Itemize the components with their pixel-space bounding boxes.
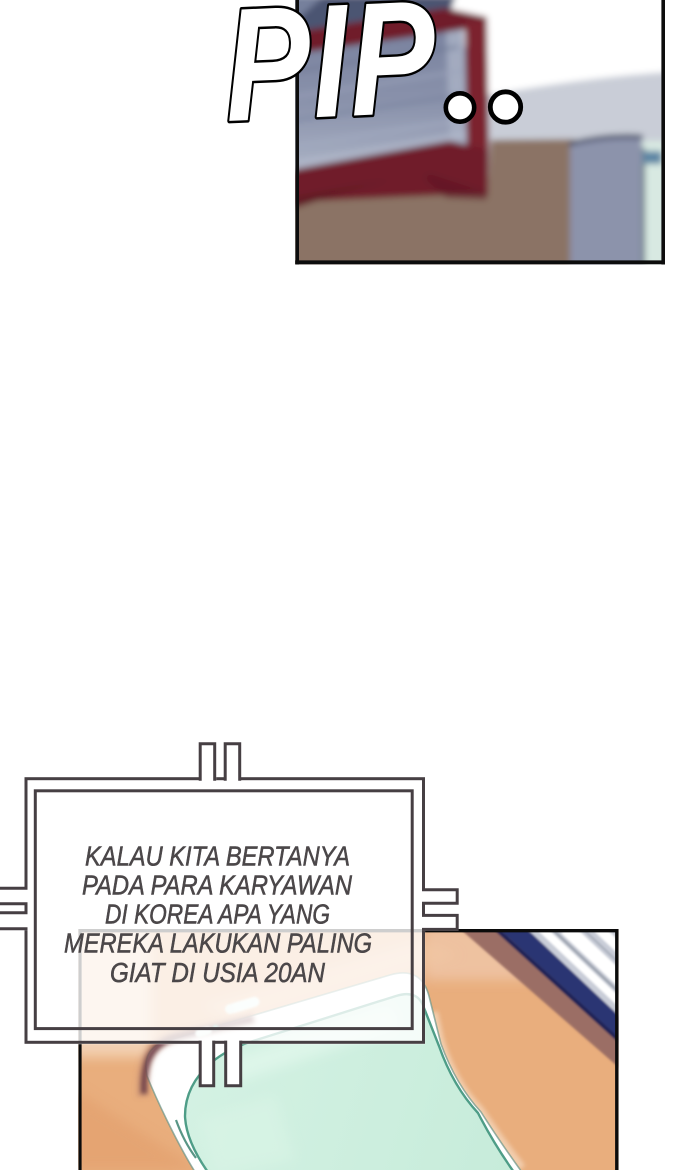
svg-text:DI KOREA APA YANG: DI KOREA APA YANG xyxy=(105,898,330,930)
svg-text:MEREKA LAKUKAN PALING: MEREKA LAKUKAN PALING xyxy=(64,927,372,959)
svg-text:PIP: PIP xyxy=(221,0,441,155)
svg-text:KALAU KITA BERTANYA: KALAU KITA BERTANYA xyxy=(85,839,350,871)
svg-text:PADA PARA KARYAWAN: PADA PARA KARYAWAN xyxy=(82,869,353,901)
svg-text:GIAT DI USIA 20AN: GIAT DI USIA 20AN xyxy=(110,956,326,988)
